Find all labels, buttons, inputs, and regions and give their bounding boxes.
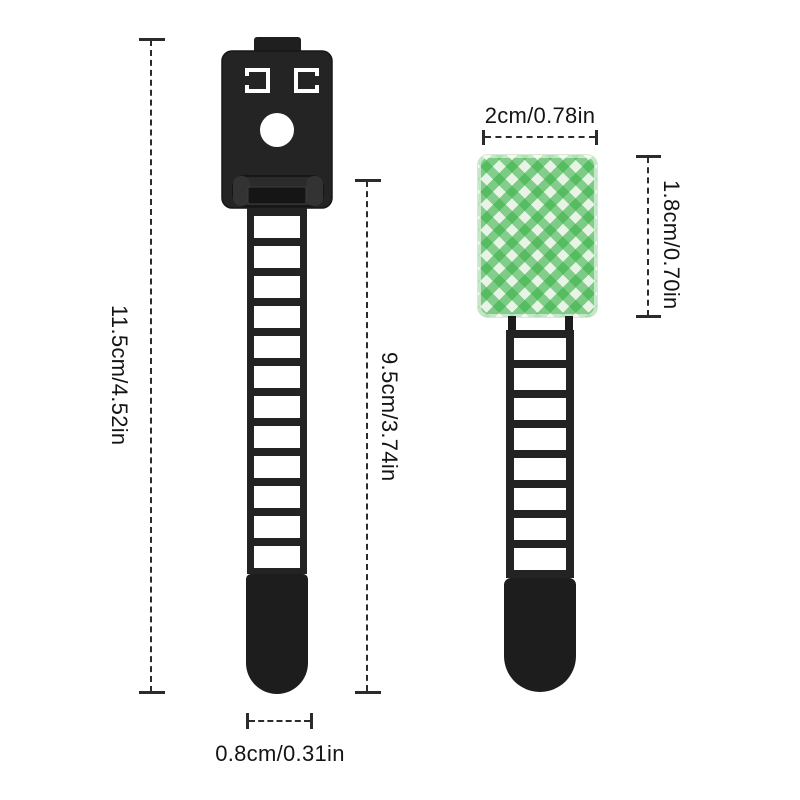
ladder-strap-left [247,208,307,574]
dimension-label-pad-width: 2cm/0.78in [465,102,615,129]
dimension-cap [355,691,381,694]
dimension-label-total-height: 11.5cm/4.52in [106,305,133,445]
dimension-cap [595,130,598,145]
strap-window [254,276,300,298]
dimension-cap [139,38,165,41]
strap-window [254,426,300,448]
strap-window [254,456,300,478]
strap-window [514,368,566,390]
mounting-hole [260,113,294,147]
strap-window [514,398,566,420]
strap-window [514,338,566,360]
strap-window [254,246,300,268]
product-dimension-diagram: 11.5cm/4.52in 9.5cm/3.74in 0.8cm/0.31in … [0,0,800,800]
strap-window [254,336,300,358]
dimension-label-strap-length: 9.5cm/3.74in [376,352,403,482]
strap-window [514,458,566,480]
strap-window [254,366,300,388]
dimension-line-strap-length [366,181,368,691]
strap-window [514,518,566,540]
strap-window [514,488,566,510]
strap-window [514,548,566,570]
dimension-line-pad-height [647,157,649,316]
strap-window [254,306,300,328]
strap-window [254,216,300,238]
strap-window [254,486,300,508]
dimension-cap [636,315,661,318]
dimension-cap [139,691,165,694]
dimension-cap [355,179,381,182]
dimension-cap [310,713,313,729]
strap-window [254,396,300,418]
dimension-line-strap-width [249,720,310,722]
strap-tip-right [504,578,576,692]
dimension-line-total-height [150,40,152,692]
dimension-label-pad-height: 1.8cm/0.70in [658,180,685,310]
clip-head [210,30,340,212]
dimension-line-pad-width [485,136,595,138]
strap-window [254,516,300,538]
hinge-flap [233,176,323,206]
strap-tip-left [246,574,308,694]
strap-window [514,428,566,450]
strap-window [254,546,300,568]
dimension-label-strap-width: 0.8cm/0.31in [205,740,355,767]
ladder-strap-right [506,330,574,578]
adhesive-pad [478,155,597,317]
